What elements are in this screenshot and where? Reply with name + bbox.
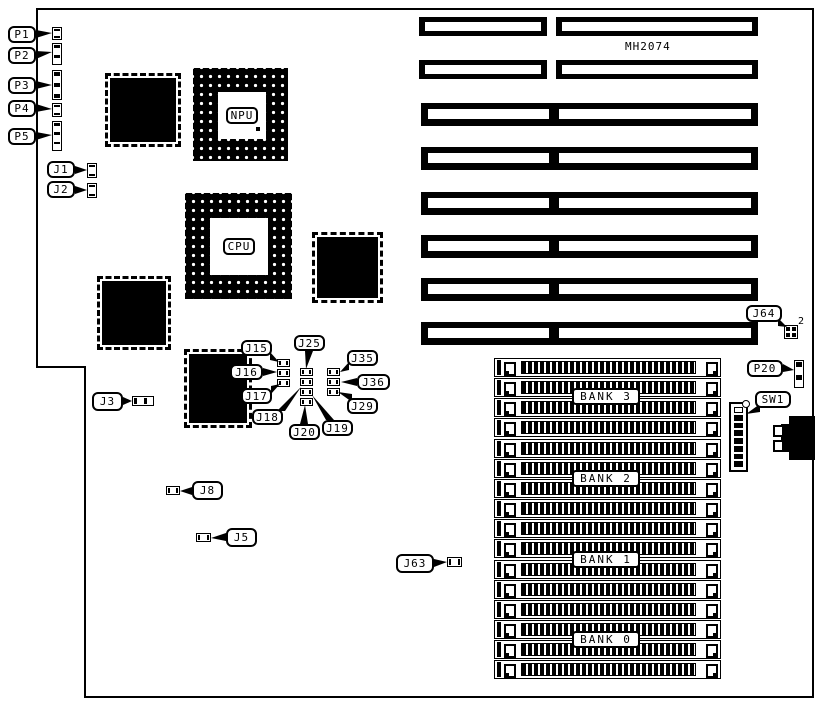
- simm-latch-right: [706, 463, 718, 477]
- simm-latch-left: [504, 664, 516, 678]
- callout-pointer-j63: [434, 559, 447, 567]
- pin-cell: [329, 390, 331, 394]
- pin-header-4: [52, 103, 62, 117]
- simm-latch-left: [504, 443, 516, 457]
- pin-header-20: [327, 368, 340, 376]
- pin-cell: [89, 189, 95, 191]
- sw1-marker-circle: [742, 400, 750, 408]
- callout-pointer-j16: [263, 368, 277, 376]
- pin-cell: [306, 380, 308, 384]
- pin-cell: [168, 488, 170, 493]
- simm-latch-left: [504, 422, 516, 436]
- pin-cell: [207, 535, 209, 540]
- simm-contacts: [521, 361, 696, 374]
- pin-cell: [796, 369, 802, 374]
- callout-j15: J15: [241, 340, 272, 356]
- callout-p1: P1: [8, 26, 36, 43]
- simm-latch-left: [504, 382, 516, 396]
- callout-j63: J63: [396, 554, 434, 573]
- pin-header-11: [447, 557, 462, 567]
- bank-label-3: BANK 3: [572, 388, 640, 405]
- isa-slot-inner: [425, 65, 541, 74]
- pin-cell: [89, 194, 95, 196]
- pin-cell: [329, 370, 331, 374]
- keyboard-connector-tab-2: [773, 440, 784, 452]
- sw1-dip-switch: [729, 402, 748, 472]
- pin-cell: [54, 72, 60, 76]
- simm-contacts: [521, 502, 696, 515]
- pin-cell: [144, 398, 147, 404]
- callout-p5: P5: [8, 128, 36, 145]
- simm-latch-left: [504, 463, 516, 477]
- pin-header-13: [277, 359, 290, 367]
- simm-endbar-left: [497, 662, 501, 677]
- bank-label-1: BANK 1: [572, 551, 640, 568]
- pin-cell: [302, 390, 304, 394]
- callout-pointer-j3: [123, 397, 132, 405]
- simm-latch-left: [504, 624, 516, 638]
- callout-pointer-j36: [341, 378, 357, 386]
- pin-cell: [54, 113, 60, 115]
- callout-j36: J36: [357, 374, 390, 390]
- simm-latch-right: [706, 362, 718, 376]
- npu-label: NPU: [226, 107, 259, 124]
- pin-cell: [54, 78, 60, 82]
- callout-j19: J19: [322, 420, 353, 436]
- cpu-label: CPU: [223, 238, 256, 255]
- bank-label-0: BANK 0: [572, 631, 640, 648]
- pin-cell: [309, 370, 311, 374]
- simm-latch-right: [706, 644, 718, 658]
- pin-header-19: [300, 398, 313, 406]
- bank-label-2: BANK 2: [572, 470, 640, 487]
- pin-cell: [54, 60, 60, 63]
- pin-cell: [279, 381, 281, 385]
- qfp-chip-3: [317, 237, 378, 298]
- simm-socket-12: [494, 580, 721, 599]
- simm-latch-right: [706, 664, 718, 678]
- simm-latch-right: [706, 564, 718, 578]
- isa-slot-inner-right: [559, 284, 751, 294]
- pin-cell: [202, 535, 204, 540]
- pin-cell: [54, 45, 60, 48]
- callout-j64: J64: [746, 305, 782, 322]
- pin-header-10: [196, 533, 211, 542]
- simm-latch-right: [706, 584, 718, 598]
- pin-cell: [336, 380, 338, 384]
- pin-header-18: [300, 388, 313, 396]
- pin-cell: [54, 83, 60, 87]
- isa-slot-inner-left: [428, 328, 549, 338]
- pin-cell: [333, 370, 335, 374]
- pin-header-1: [52, 27, 62, 40]
- pin-cell: [89, 169, 95, 171]
- simm-latch-right: [706, 523, 718, 537]
- simm-endbar-left: [497, 622, 501, 637]
- simm-latch-right: [706, 483, 718, 497]
- callout-pointer-p4: [36, 104, 52, 112]
- pin-cell: [329, 380, 331, 384]
- callout-p2: P2: [8, 47, 36, 64]
- pin-header-17: [300, 378, 313, 386]
- pin-cell: [336, 370, 338, 374]
- pin-cell: [333, 390, 335, 394]
- simm-socket-8: [494, 499, 721, 518]
- pin-cell: [54, 123, 60, 126]
- simm-endbar-left: [497, 481, 501, 496]
- board-edge-top: [36, 8, 814, 10]
- simm-latch-right: [706, 543, 718, 557]
- simm-latch-right: [706, 503, 718, 517]
- callout-j17: J17: [241, 388, 272, 404]
- pin-cell: [286, 361, 288, 365]
- npu-pin1-dot: [256, 127, 260, 131]
- simm-contacts: [521, 603, 696, 616]
- pin-cell: [302, 400, 304, 404]
- simm-socket-13: [494, 600, 721, 619]
- isa-slot-inner-right: [559, 153, 751, 163]
- pin-cell: [89, 185, 95, 187]
- isa-slot-inner-right: [559, 109, 751, 119]
- simm-endbar-left: [497, 441, 501, 456]
- simm-latch-left: [504, 584, 516, 598]
- isa-slot-inner-right: [559, 198, 751, 208]
- pin-header-6: [87, 163, 97, 178]
- keyboard-connector: [789, 416, 815, 460]
- isa-slot-inner: [562, 22, 752, 31]
- pin-cell: [54, 137, 60, 140]
- callout-j29: J29: [347, 398, 378, 414]
- callout-j25: J25: [294, 335, 325, 351]
- pin-header-22: [327, 388, 340, 396]
- isa-slot-inner-left: [428, 284, 549, 294]
- simm-contacts: [521, 421, 696, 434]
- callout-j5: J5: [226, 528, 257, 547]
- simm-endbar-left: [497, 461, 501, 476]
- board-edge-right: [812, 8, 814, 698]
- keyboard-connector-tab-1: [773, 425, 784, 437]
- pin-cell: [302, 380, 304, 384]
- callout-pointer-j2: [75, 186, 87, 194]
- simm-latch-left: [504, 402, 516, 416]
- simm-latch-left: [504, 503, 516, 517]
- pin-cell: [306, 370, 308, 374]
- callout-j1: J1: [47, 161, 75, 178]
- pin-header-9: [166, 486, 180, 495]
- board-edge-left-upper: [36, 8, 38, 368]
- part-number: MH2074: [625, 40, 671, 53]
- pin-cell: [54, 128, 60, 131]
- pin-cell: [302, 370, 304, 374]
- pin-cell: [54, 36, 60, 38]
- callout-sw1: SW1: [755, 391, 791, 408]
- simm-endbar-left: [497, 400, 501, 415]
- pin-cell: [54, 55, 60, 58]
- simm-latch-left: [504, 523, 516, 537]
- callout-pointer-p20: [783, 364, 794, 372]
- pin-cell: [54, 29, 60, 31]
- npu-window: NPU: [218, 92, 266, 139]
- callout-j18: J18: [252, 409, 283, 425]
- simm-contacts: [521, 583, 696, 596]
- isa-slot-inner-left: [428, 109, 549, 119]
- simm-endbar-left: [497, 521, 501, 536]
- simm-endbar-left: [497, 602, 501, 617]
- simm-latch-right: [706, 604, 718, 618]
- simm-endbar-left: [497, 582, 501, 597]
- isa-slot-inner-right: [559, 241, 751, 251]
- callout-pointer-j19: [312, 395, 334, 420]
- pin-cell: [54, 142, 60, 145]
- pin-cell: [172, 488, 174, 493]
- pin-cell: [279, 371, 281, 375]
- pin-cell: [796, 375, 802, 380]
- isa-slot-inner: [425, 22, 541, 31]
- pin-cell: [283, 371, 285, 375]
- pin-header-7: [87, 183, 97, 198]
- simm-latch-right: [706, 624, 718, 638]
- pin-cell: [458, 559, 460, 565]
- simm-endbar-left: [497, 380, 501, 395]
- simm-latch-left: [504, 483, 516, 497]
- pin-cell: [333, 380, 335, 384]
- pin-cell: [283, 361, 285, 365]
- simm-socket-5: [494, 439, 721, 458]
- simm-endbar-left: [497, 562, 501, 577]
- npu-socket: NPU: [193, 68, 288, 161]
- pin-cell: [453, 559, 455, 565]
- pin-header-15: [277, 379, 290, 387]
- pin-header-14: [277, 369, 290, 377]
- pin-header-5: [52, 121, 62, 151]
- simm-socket-4: [494, 418, 721, 437]
- pin-cell: [309, 390, 311, 394]
- simm-socket-16: [494, 660, 721, 679]
- pin-cell: [54, 33, 60, 35]
- pin-cell: [286, 381, 288, 385]
- simm-endbar-left: [497, 501, 501, 516]
- pin-header-21: [327, 378, 340, 386]
- callout-j35: J35: [347, 350, 378, 366]
- callout-j3: J3: [92, 392, 123, 411]
- pin-cell: [198, 535, 200, 540]
- simm-endbar-left: [497, 420, 501, 435]
- pin-cell: [139, 398, 142, 404]
- cpu-socket: CPU: [185, 193, 292, 299]
- pin-cell: [89, 174, 95, 176]
- board-edge-bottom: [84, 696, 814, 698]
- callout-pointer-p2: [36, 51, 52, 59]
- callout-pointer-p5: [36, 132, 52, 140]
- board-edge-step: [36, 366, 86, 368]
- isa-slot-inner: [562, 65, 752, 74]
- pin-header-12: [794, 360, 804, 388]
- pin-cell: [796, 362, 802, 367]
- simm-latch-left: [504, 644, 516, 658]
- callout-j8: J8: [192, 481, 223, 500]
- simm-endbar-left: [497, 642, 501, 657]
- pin-cell: [283, 381, 285, 385]
- isa-slot-inner-left: [428, 153, 549, 163]
- j64-connector: [784, 325, 798, 339]
- pin-cell: [54, 109, 60, 111]
- pin-header-2: [52, 43, 62, 65]
- qfp-chip-1: [110, 78, 176, 142]
- callout-j16: J16: [230, 364, 263, 380]
- isa-slot-inner-left: [428, 198, 549, 208]
- callout-pointer-j1: [75, 166, 87, 174]
- pin-cell: [306, 390, 308, 394]
- pin-cell: [286, 371, 288, 375]
- simm-contacts: [521, 442, 696, 455]
- j64-pin2-label: 2: [798, 316, 805, 327]
- simm-latch-right: [706, 443, 718, 457]
- pin-cell: [306, 400, 308, 404]
- simm-latch-left: [504, 604, 516, 618]
- simm-socket-9: [494, 519, 721, 538]
- simm-latch-left: [504, 564, 516, 578]
- cpu-window: CPU: [210, 218, 268, 275]
- callout-p3: P3: [8, 77, 36, 94]
- callout-p20: P20: [747, 360, 783, 377]
- pin-cell: [54, 94, 60, 98]
- pin-cell: [309, 380, 311, 384]
- callout-pointer-j20: [300, 405, 308, 424]
- pin-cell: [54, 132, 60, 135]
- callout-pointer-j18: [277, 387, 301, 411]
- pin-cell: [54, 89, 60, 93]
- pin-cell: [796, 382, 802, 387]
- pin-cell: [149, 398, 152, 404]
- simm-endbar-left: [497, 360, 501, 375]
- motherboard-diagram: MH2074 NPU CPU 2 P1P2P3P4P5J1J2J3J8J5J63…: [0, 0, 821, 703]
- pin-cell: [176, 488, 178, 493]
- isa-slot-inner-left: [428, 241, 549, 251]
- pin-cell: [449, 559, 451, 565]
- simm-latch-left: [504, 543, 516, 557]
- simm-latch-right: [706, 382, 718, 396]
- callout-p4: P4: [8, 100, 36, 117]
- simm-latch-left: [504, 362, 516, 376]
- simm-endbar-left: [497, 541, 501, 556]
- pin-cell: [134, 398, 137, 404]
- callout-pointer-p3: [36, 81, 52, 89]
- pin-header-8: [132, 396, 154, 406]
- callout-j2: J2: [47, 181, 75, 198]
- pin-cell: [309, 400, 311, 404]
- simm-socket-1: [494, 358, 721, 377]
- pin-cell: [54, 146, 60, 149]
- simm-contacts: [521, 522, 696, 535]
- callout-pointer-j5: [211, 533, 226, 541]
- pin-cell: [279, 361, 281, 365]
- pin-cell: [54, 50, 60, 53]
- pin-cell: [89, 165, 95, 167]
- callout-j20: J20: [289, 424, 320, 440]
- board-edge-left-lower: [84, 366, 86, 698]
- callout-pointer-j25: [305, 351, 313, 369]
- pin-cell: [336, 390, 338, 394]
- qfp-chip-2: [102, 281, 166, 345]
- pin-header-3: [52, 70, 62, 100]
- pin-cell: [54, 105, 60, 107]
- simm-contacts: [521, 663, 696, 676]
- isa-slot-inner-right: [559, 328, 751, 338]
- simm-latch-right: [706, 402, 718, 416]
- simm-latch-right: [706, 422, 718, 436]
- callout-pointer-p1: [36, 30, 52, 38]
- callout-pointer-j8: [180, 487, 192, 495]
- pin-header-16: [300, 368, 313, 376]
